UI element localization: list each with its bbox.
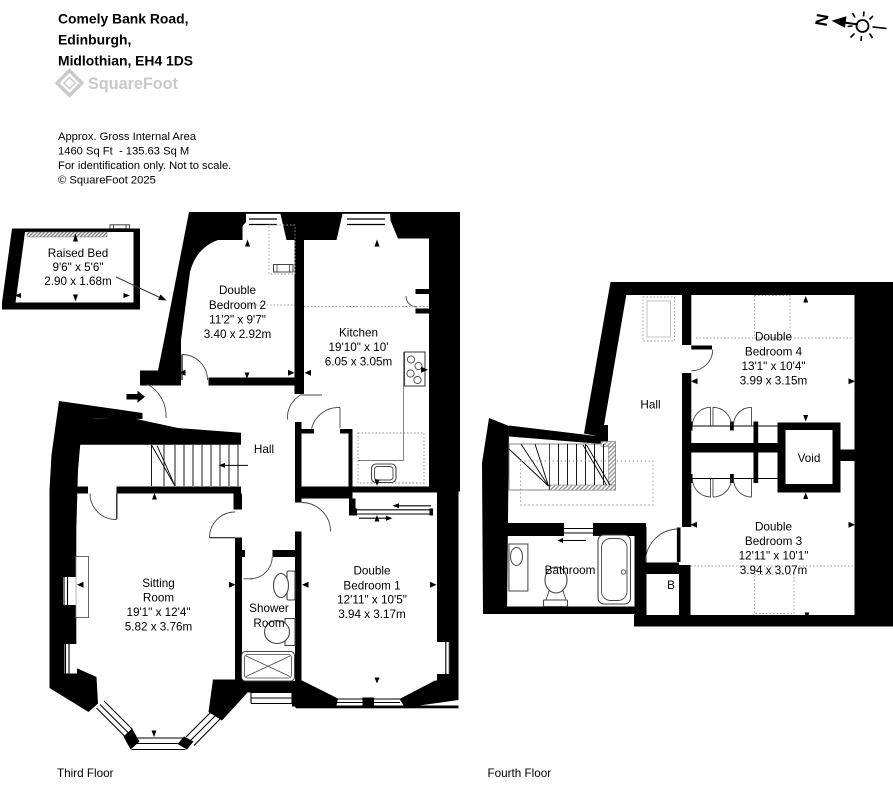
svg-text:Room: Room <box>253 617 284 630</box>
svg-text:Raised Bed: Raised Bed <box>48 247 108 260</box>
svg-text:Room: Room <box>143 592 174 605</box>
svg-text:Hall: Hall <box>254 443 274 456</box>
svg-text:3.94 x 3.17m: 3.94 x 3.17m <box>338 608 406 621</box>
svg-text:SquareFoot: SquareFoot <box>88 75 179 93</box>
svg-text:Double: Double <box>755 521 792 534</box>
svg-text:Bedroom 2: Bedroom 2 <box>209 299 266 312</box>
svg-text:Fourth Floor: Fourth Floor <box>488 767 552 780</box>
svg-text:Comely Bank Road,: Comely Bank Road, <box>58 11 188 27</box>
svg-text:Double: Double <box>219 284 256 297</box>
svg-text:Bedroom 4: Bedroom 4 <box>745 346 803 359</box>
svg-text:2.90 x 1.68m: 2.90 x 1.68m <box>44 275 112 288</box>
svg-text:12'11" x 10'1": 12'11" x 10'1" <box>739 550 809 563</box>
svg-text:Approx. Gross Internal Area: Approx. Gross Internal Area <box>58 131 197 143</box>
svg-text:Third Floor: Third Floor <box>57 767 114 780</box>
svg-text:13'1" x 10'4": 13'1" x 10'4" <box>741 360 805 373</box>
svg-text:19'1" x 12'4": 19'1" x 12'4" <box>126 606 190 619</box>
svg-text:Bedroom 3: Bedroom 3 <box>745 535 802 548</box>
svg-text:11'2" x 9'7": 11'2" x 9'7" <box>209 314 266 327</box>
svg-text:Bathroom: Bathroom <box>545 564 596 577</box>
svg-text:1460 Sq Ft - 135.63 Sq M: 1460 Sq Ft - 135.63 Sq M <box>58 146 189 158</box>
svg-text:5.82 x 3.76m: 5.82 x 3.76m <box>125 621 193 634</box>
svg-text:Double: Double <box>353 565 390 578</box>
svg-text:Double: Double <box>755 331 792 344</box>
svg-text:3.94 x 3.07m: 3.94 x 3.07m <box>740 564 808 577</box>
svg-text:3.40 x 2.92m: 3.40 x 2.92m <box>204 328 272 341</box>
svg-text:19'10" x 10': 19'10" x 10' <box>329 341 389 354</box>
svg-text:Bedroom 1: Bedroom 1 <box>343 580 400 593</box>
svg-text:B: B <box>667 579 675 592</box>
svg-text:9'6" x 5'6": 9'6" x 5'6" <box>52 261 103 274</box>
svg-text:6.05 x 3.05m: 6.05 x 3.05m <box>325 356 393 369</box>
svg-text:Shower: Shower <box>249 602 289 615</box>
svg-text:3.99 x 3.15m: 3.99 x 3.15m <box>740 375 808 388</box>
svg-text:Edinburgh,: Edinburgh, <box>58 32 131 48</box>
svg-text:Kitchen: Kitchen <box>339 327 378 340</box>
svg-text:Hall: Hall <box>640 399 660 412</box>
svg-text:For identification only. Not t: For identification only. Not to scale. <box>58 160 231 172</box>
svg-text:12'11" x 10'5": 12'11" x 10'5" <box>337 594 407 607</box>
svg-text:Midlothian, EH4 1DS: Midlothian, EH4 1DS <box>58 53 193 69</box>
svg-text:Sitting: Sitting <box>142 577 174 590</box>
svg-text:© SquareFoot 2025: © SquareFoot 2025 <box>58 175 156 187</box>
svg-text:Void: Void <box>798 452 821 465</box>
